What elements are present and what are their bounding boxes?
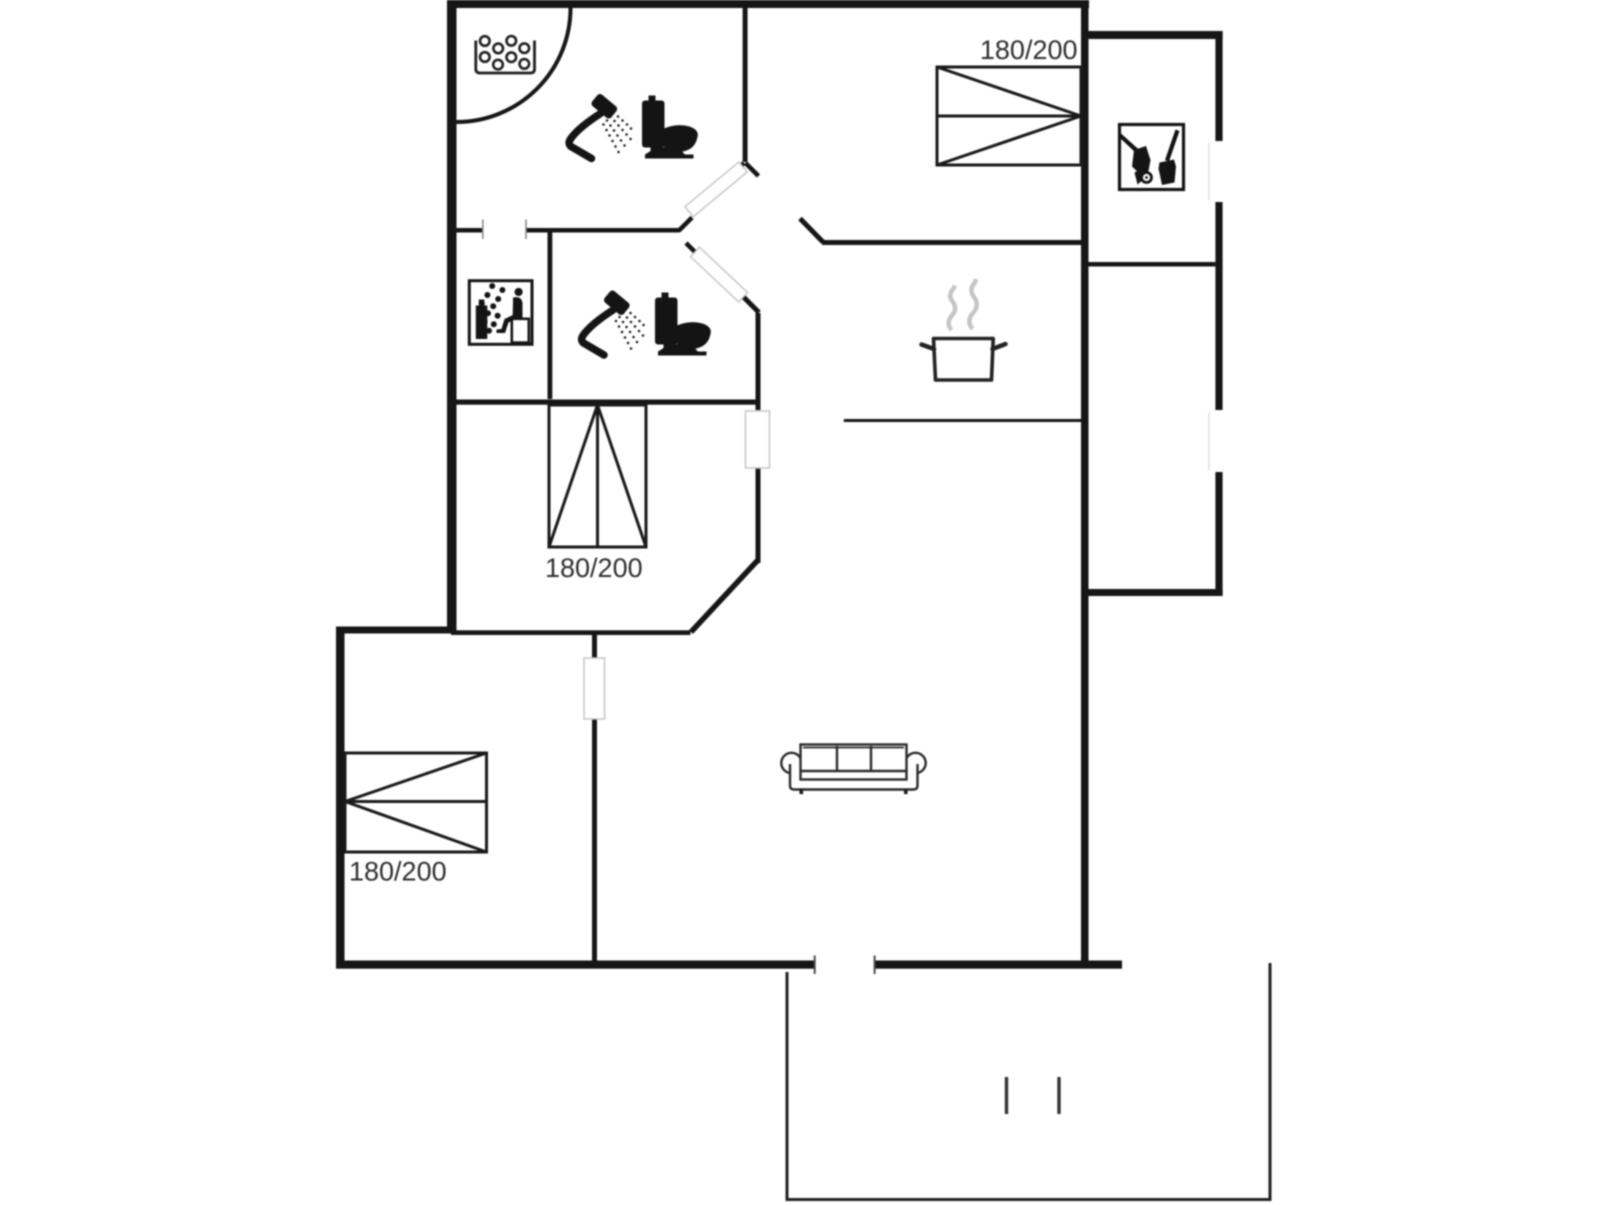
svg-text:180/200: 180/200 bbox=[980, 35, 1078, 65]
svg-text:180/200: 180/200 bbox=[349, 857, 447, 887]
svg-text:180/200: 180/200 bbox=[545, 553, 643, 583]
